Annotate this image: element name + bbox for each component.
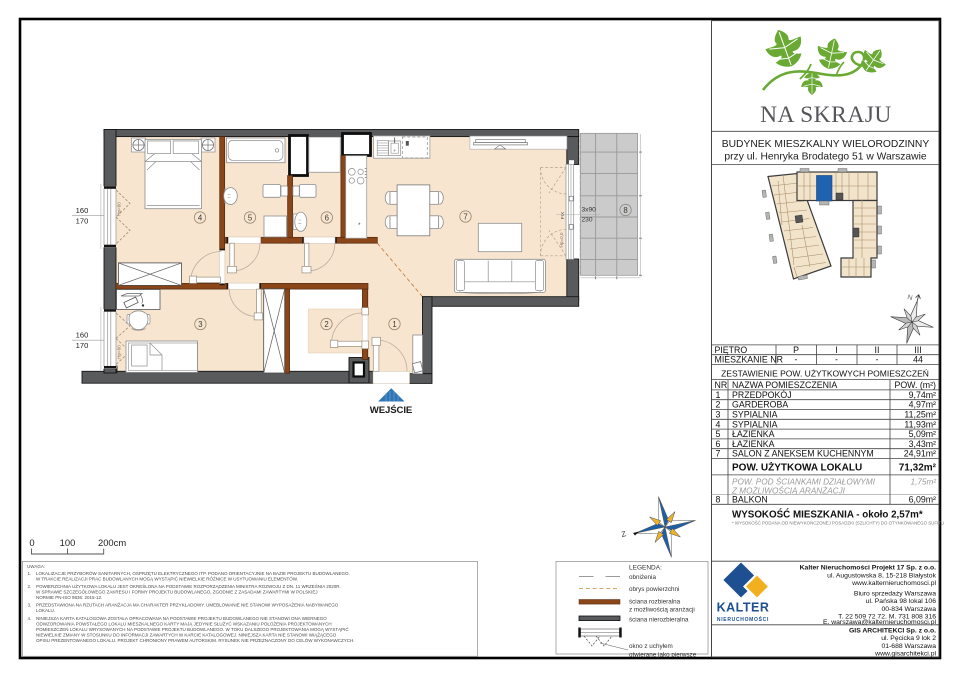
svg-text:4.: 4.: [28, 616, 32, 621]
svg-text:5: 5: [248, 213, 253, 222]
svg-text:1: 1: [716, 390, 721, 400]
svg-text:SYPIALNIA: SYPIALNIA: [732, 410, 778, 420]
svg-text:Hp=0,0: Hp=0,0: [559, 232, 564, 247]
svg-text:71,32m²: 71,32m²: [899, 463, 937, 474]
svg-text:01-688 Warszawa: 01-688 Warszawa: [881, 643, 936, 650]
svg-text:1,75m²: 1,75m²: [911, 478, 937, 487]
svg-text:NAZWA POMIESZCZENIA: NAZWA POMIESZCZENIA: [732, 380, 837, 390]
svg-text:P: P: [793, 345, 799, 355]
svg-text:2: 2: [324, 320, 328, 329]
svg-text:-: -: [795, 355, 798, 365]
svg-text:160: 160: [76, 206, 89, 215]
svg-text:-: -: [835, 355, 838, 365]
svg-text:3: 3: [198, 320, 202, 329]
svg-text:7: 7: [716, 449, 721, 459]
svg-text:230: 230: [582, 217, 593, 224]
svg-text:2: 2: [716, 400, 721, 410]
svg-text:ŁAZIENKA: ŁAZIENKA: [732, 429, 775, 439]
svg-text:Biuro sprzedaży Warszawa: Biuro sprzedaży Warszawa: [854, 591, 936, 598]
svg-text:4: 4: [716, 419, 721, 429]
svg-text:6,09m²: 6,09m²: [909, 495, 936, 505]
svg-text:Kalter Nieruchomości Projekt 1: Kalter Nieruchomości Projekt 17 Sp. z o.…: [800, 565, 936, 572]
svg-text:III: III: [914, 345, 921, 355]
svg-text:1.: 1.: [28, 571, 32, 576]
svg-text:BUDYNEK MIESZKALNY WIELORODZIN: BUDYNEK MIESZKALNY WIELORODZINNY: [722, 139, 930, 150]
svg-text:24,91m²: 24,91m²: [904, 449, 936, 459]
svg-text:4: 4: [198, 213, 203, 222]
svg-text:5: 5: [716, 429, 721, 439]
svg-text:UWAGA:: UWAGA:: [27, 564, 45, 569]
svg-text:1: 1: [392, 320, 396, 329]
svg-text:POW. (m²): POW. (m²): [894, 380, 936, 390]
svg-text:Hp=80: Hp=80: [117, 345, 122, 359]
svg-text:8: 8: [623, 206, 627, 215]
svg-text:4,97m²: 4,97m²: [909, 400, 936, 410]
svg-text:-: -: [876, 355, 879, 365]
svg-text:POMIESZCZEŃ LOKALU WRYSOWANYCH: POMIESZCZEŃ LOKALU WRYSOWANYCH NA PODSTA…: [36, 626, 349, 632]
svg-text:ściana rozbieralna: ściana rozbieralna: [629, 598, 681, 605]
svg-text:PRZEDPOKÓJ: PRZEDPOKÓJ: [732, 390, 792, 400]
svg-text:ul. Pańska 98 lokal 106: ul. Pańska 98 lokal 106: [866, 598, 937, 605]
svg-text:9,74m²: 9,74m²: [909, 390, 936, 400]
svg-text:ŁAZIENKA: ŁAZIENKA: [732, 439, 775, 449]
svg-text:obrys powierzchni: obrys powierzchni: [629, 586, 679, 593]
svg-text:WEJŚCIE: WEJŚCIE: [370, 404, 413, 416]
svg-text:* WYSOKOŚĆ PODANA OD NIEWYKOŃC: * WYSOKOŚĆ PODANA OD NIEWYKOŃCZONEJ POSA…: [732, 521, 944, 526]
svg-text:FIX: FIX: [560, 211, 566, 219]
svg-text:6: 6: [325, 213, 329, 222]
svg-text:II: II: [875, 345, 880, 355]
svg-text:ODWZOROWANIA POWSTAŁEGO LOKALU: ODWZOROWANIA POWSTAŁEGO LOKALU MIESZKALN…: [36, 621, 332, 627]
svg-text:6: 6: [716, 439, 721, 449]
svg-text:LOKALIZACJE PRZYBORÓW SANITARN: LOKALIZACJE PRZYBORÓW SANITARNYCH, OSPRZ…: [36, 570, 350, 576]
svg-text:3,43m²: 3,43m²: [909, 439, 936, 449]
svg-text:SYPIALNIA: SYPIALNIA: [732, 419, 778, 429]
svg-text:z możliwością aranżacji: z możliwością aranżacji: [629, 607, 695, 614]
svg-text:GIS ARCHITEKCI Sp. z o.o.: GIS ARCHITEKCI Sp. z o.o.: [849, 628, 936, 635]
svg-text:170: 170: [76, 341, 89, 350]
svg-text:KALTER: KALTER: [717, 601, 770, 615]
svg-text:11,25m²: 11,25m²: [904, 410, 936, 420]
svg-text:otwierane jako pierwsze: otwierane jako pierwsze: [629, 652, 697, 659]
svg-text:100: 100: [60, 537, 76, 548]
svg-text:3.: 3.: [28, 603, 32, 608]
svg-text:00-834 Warszawa: 00-834 Warszawa: [881, 606, 936, 613]
svg-text:OPISU PREZENTOWANEGO LOKALU. P: OPISU PREZENTOWANEGO LOKALU. PROJEKT CHR…: [36, 637, 355, 643]
svg-text:NR: NR: [715, 380, 728, 390]
svg-text:I: I: [835, 345, 837, 355]
svg-text:LEGENDA:: LEGENDA:: [629, 565, 662, 572]
svg-text:3: 3: [716, 410, 721, 420]
svg-text:przy ul. Henryka Brodatego 51: przy ul. Henryka Brodatego 51 w Warszawi…: [724, 152, 926, 163]
svg-text:obniżenia: obniżenia: [629, 574, 656, 581]
svg-text:NIEWIELKIE ZMIANY W STOSUNKU D: NIEWIELKIE ZMIANY W STOSUNKU DO INFORMAC…: [36, 632, 337, 638]
svg-text:200cm: 200cm: [98, 537, 126, 548]
svg-text:MIESZKANIE NR: MIESZKANIE NR: [715, 355, 783, 365]
svg-text:2.: 2.: [28, 584, 32, 589]
svg-text:ul. Augustowska 8, 15-218 Biał: ul. Augustowska 8, 15-218 Białystok: [827, 572, 936, 579]
svg-text:PRZEDSTAWIONA NA RZUTACH ARANŻ: PRZEDSTAWIONA NA RZUTACH ARANŻACJA MA CH…: [36, 602, 339, 608]
svg-text:www.kalternieruchomosci.pl: www.kalternieruchomosci.pl: [851, 580, 936, 587]
svg-text:LOKALU.: LOKALU.: [36, 608, 55, 613]
svg-text:PIĘTRO: PIĘTRO: [715, 345, 748, 355]
svg-text:W TRAKCIE REALIZACJI PRAC BUDO: W TRAKCIE REALIZACJI PRAC BUDOWLANYCH MO…: [36, 575, 298, 581]
svg-text:POWIERZCHNIA UŻYTKOWA LOKALU J: POWIERZCHNIA UŻYTKOWA LOKALU JEST OKREŚL…: [36, 582, 341, 589]
svg-text:44: 44: [913, 355, 923, 365]
svg-text:Hp=80: Hp=80: [117, 202, 122, 216]
svg-text:NA SKRAJU: NA SKRAJU: [760, 102, 892, 128]
svg-text:ul. Pęcicka 9 lok 2: ul. Pęcicka 9 lok 2: [881, 635, 936, 642]
svg-text:okno z uchyłem: okno z uchyłem: [629, 643, 673, 650]
svg-text:W SPRAWIE SZCZEGÓŁOWEGO ZAKRES: W SPRAWIE SZCZEGÓŁOWEGO ZAKRESU I FORMY …: [36, 589, 318, 595]
svg-text:NIERUCHOMOŚCI: NIERUCHOMOŚCI: [717, 616, 769, 623]
svg-text:0: 0: [29, 537, 34, 548]
svg-text:3x90: 3x90: [582, 207, 597, 214]
svg-text:www.gisarchitekci.pl: www.gisarchitekci.pl: [874, 650, 936, 657]
svg-text:ściana nierozbieralna: ściana nierozbieralna: [629, 616, 689, 623]
svg-text:POW. UŻYTKOWA LOKALU: POW. UŻYTKOWA LOKALU: [732, 461, 862, 474]
svg-text:NORMIE PN-ISO 9836: 2015-12.: NORMIE PN-ISO 9836: 2015-12.: [36, 595, 102, 600]
svg-text:160: 160: [76, 331, 89, 340]
svg-text:ZESTAWIENIE POW. UŻYTKOWYCH PO: ZESTAWIENIE POW. UŻYTKOWYCH POMIESZCZEŃ: [721, 368, 929, 378]
svg-text:GARDEROBA: GARDEROBA: [732, 400, 788, 410]
svg-text:WYSOKOŚĆ MIESZKANIA - około 2,: WYSOKOŚĆ MIESZKANIA - około 2,57m*: [732, 509, 923, 521]
svg-text:SALON Z ANEKSEM KUCHENNYM: SALON Z ANEKSEM KUCHENNYM: [732, 449, 874, 459]
svg-text:5,09m²: 5,09m²: [909, 429, 936, 439]
svg-text:11,93m²: 11,93m²: [904, 419, 936, 429]
svg-text:8: 8: [716, 495, 721, 505]
svg-text:NINIEJSZA KARTA KATALOGOWA ZOS: NINIEJSZA KARTA KATALOGOWA ZOSTAŁA OPRAC…: [36, 616, 327, 621]
svg-text:POW. POD ŚCIANKAMI DZIAŁOWYMI: POW. POD ŚCIANKAMI DZIAŁOWYMI: [732, 476, 876, 487]
svg-text:7: 7: [463, 212, 467, 221]
svg-text:BALKON: BALKON: [732, 495, 768, 505]
svg-text:170: 170: [76, 217, 89, 226]
